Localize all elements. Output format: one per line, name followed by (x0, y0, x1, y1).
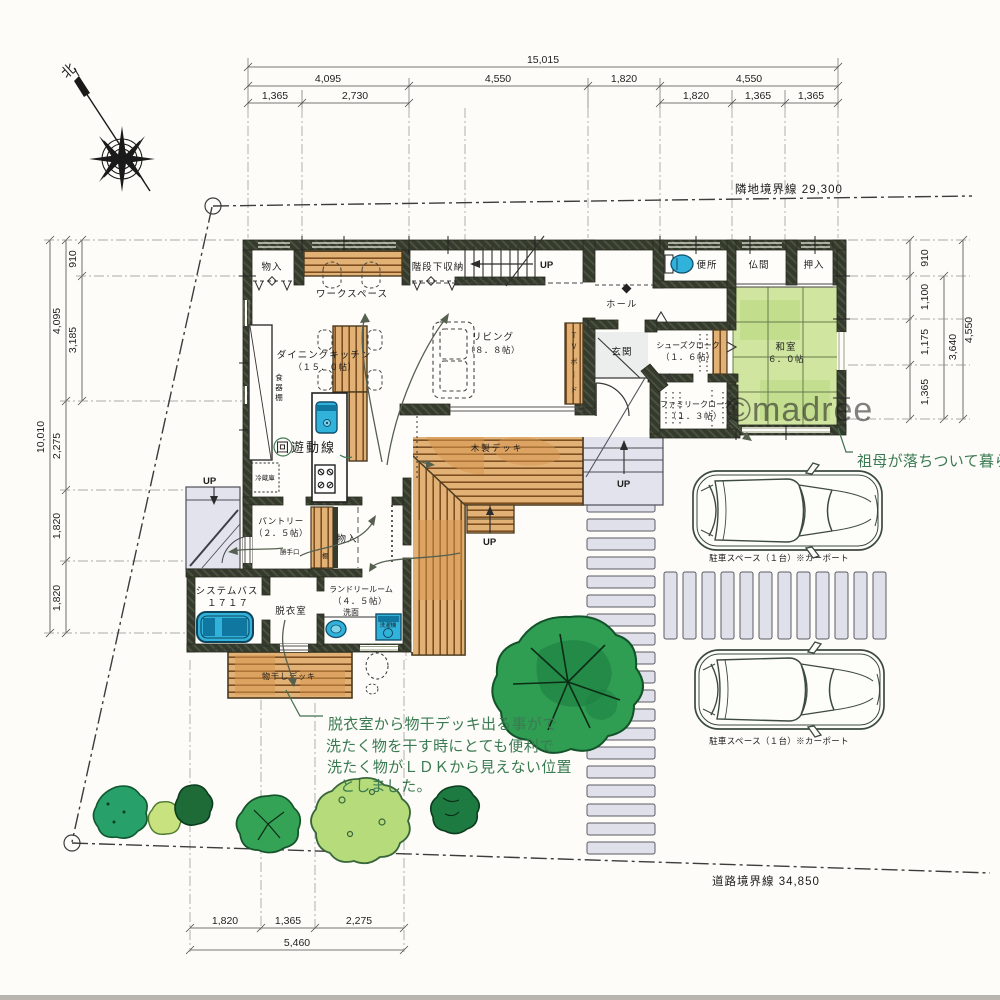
svg-text:回遊動線: 回遊動線 (276, 440, 336, 455)
svg-text:Ｔ: Ｔ (571, 332, 578, 340)
svg-text:ファミリークローク: ファミリークローク (660, 400, 732, 409)
svg-text:（１．３帖）: （１．３帖） (668, 411, 722, 421)
svg-text:1,820: 1,820 (212, 915, 238, 927)
svg-text:（８．８帖）: （８．８帖） (466, 345, 520, 355)
svg-text:1,175: 1,175 (919, 329, 931, 355)
svg-text:道路境界線 34,850: 道路境界線 34,850 (712, 874, 820, 888)
svg-text:（２．５帖）: （２．５帖） (254, 528, 308, 538)
svg-text:2,730: 2,730 (342, 90, 368, 102)
svg-text:ホール: ホール (606, 299, 638, 309)
svg-text:Ｖ: Ｖ (571, 343, 578, 351)
svg-text:ダイニングキッチン: ダイニングキッチン (277, 349, 372, 361)
svg-text:ワークスペース: ワークスペース (316, 289, 388, 300)
svg-text:（４．５帖）: （４．５帖） (333, 596, 387, 606)
svg-text:玄関: 玄関 (611, 346, 632, 358)
svg-text:階段下収納: 階段下収納 (412, 261, 465, 273)
svg-text:1,365: 1,365 (262, 90, 288, 102)
svg-text:隣地境界線 29,300: 隣地境界線 29,300 (735, 182, 843, 196)
svg-text:4,550: 4,550 (963, 317, 975, 343)
svg-text:1,365: 1,365 (798, 90, 824, 102)
svg-text:物入: 物入 (261, 261, 282, 273)
svg-text:1,820: 1,820 (683, 90, 709, 102)
svg-text:UP: UP (540, 260, 554, 271)
svg-text:3,640: 3,640 (947, 334, 959, 360)
svg-text:祖母が落ちついて暮ら: 祖母が落ちついて暮ら (857, 453, 1000, 470)
svg-text:UP: UP (203, 476, 217, 487)
svg-text:1,820: 1,820 (51, 513, 63, 539)
svg-text:としました。: としました。 (340, 778, 432, 795)
svg-text:システムバス: システムバス (196, 586, 259, 597)
svg-text:６．０帖: ６．０帖 (768, 354, 804, 364)
svg-text:4,095: 4,095 (51, 308, 63, 334)
svg-text:15,015: 15,015 (527, 54, 559, 66)
svg-text:ボ: ボ (571, 358, 578, 366)
svg-text:洗面: 洗面 (343, 607, 359, 617)
svg-text:便所: 便所 (696, 259, 717, 271)
svg-text:910: 910 (67, 250, 79, 268)
svg-text:2,275: 2,275 (346, 915, 372, 927)
svg-text:1,100: 1,100 (919, 284, 931, 310)
svg-text:5,460: 5,460 (284, 937, 310, 949)
svg-text:2,275: 2,275 (51, 433, 63, 459)
svg-text:UP: UP (617, 479, 631, 490)
svg-text:シューズクローク: シューズクローク (656, 340, 720, 350)
svg-text:脱衣室: 脱衣室 (275, 605, 307, 617)
svg-text:（１５．０帖）: （１５．０帖） (293, 362, 356, 372)
svg-text:木製デッキ: 木製デッキ (471, 443, 524, 453)
svg-text:駐車スペース（１台）※カーポート: 駐車スペース（１台）※カーポート (709, 553, 849, 563)
svg-text:リビング: リビング (472, 331, 514, 343)
svg-text:脱衣室から物干デッキ出る事がで: 脱衣室から物干デッキ出る事がで (328, 715, 558, 733)
svg-text:冷蔵庫: 冷蔵庫 (255, 473, 275, 482)
svg-text:和室: 和室 (775, 341, 796, 353)
svg-text:1,365: 1,365 (745, 90, 771, 102)
svg-text:1,820: 1,820 (611, 73, 637, 85)
svg-text:1,365: 1,365 (275, 915, 301, 927)
svg-text:パントリー: パントリー (258, 516, 303, 526)
svg-text:910: 910 (919, 249, 931, 267)
svg-text:UP: UP (483, 537, 497, 548)
svg-text:洗濯機: 洗濯機 (380, 621, 397, 629)
svg-text:3,185: 3,185 (67, 327, 79, 353)
svg-text:4,550: 4,550 (736, 73, 762, 85)
svg-text:洗たく物がＬＤＫから見えない位置: 洗たく物がＬＤＫから見えない位置 (327, 759, 572, 776)
svg-text:駐車スペース（１台）※カーポート: 駐車スペース（１台）※カーポート (709, 736, 849, 746)
svg-text:仏間: 仏間 (748, 260, 769, 271)
svg-text:（１．６帖）: （１．６帖） (661, 352, 715, 362)
svg-text:10,010: 10,010 (35, 421, 47, 453)
svg-text:棚: 棚 (275, 392, 283, 402)
svg-text:器: 器 (275, 383, 283, 392)
svg-text:食: 食 (275, 372, 283, 382)
svg-text:｜: ｜ (571, 371, 578, 379)
svg-text:押入: 押入 (803, 259, 824, 271)
svg-text:棚: 棚 (322, 551, 329, 560)
svg-text:洗たく物を干す時にとても便利で: 洗たく物を干す時にとても便利で (326, 738, 554, 755)
svg-text:１７１７: １７１７ (207, 598, 249, 609)
svg-text:©madree: ©madree (726, 391, 873, 429)
svg-text:ランドリールーム: ランドリールーム (329, 585, 393, 594)
svg-text:4,095: 4,095 (315, 73, 341, 85)
svg-text:4,550: 4,550 (485, 73, 511, 85)
svg-text:1,365: 1,365 (919, 379, 931, 405)
svg-text:1,820: 1,820 (51, 585, 63, 611)
svg-text:ド: ド (571, 387, 578, 394)
